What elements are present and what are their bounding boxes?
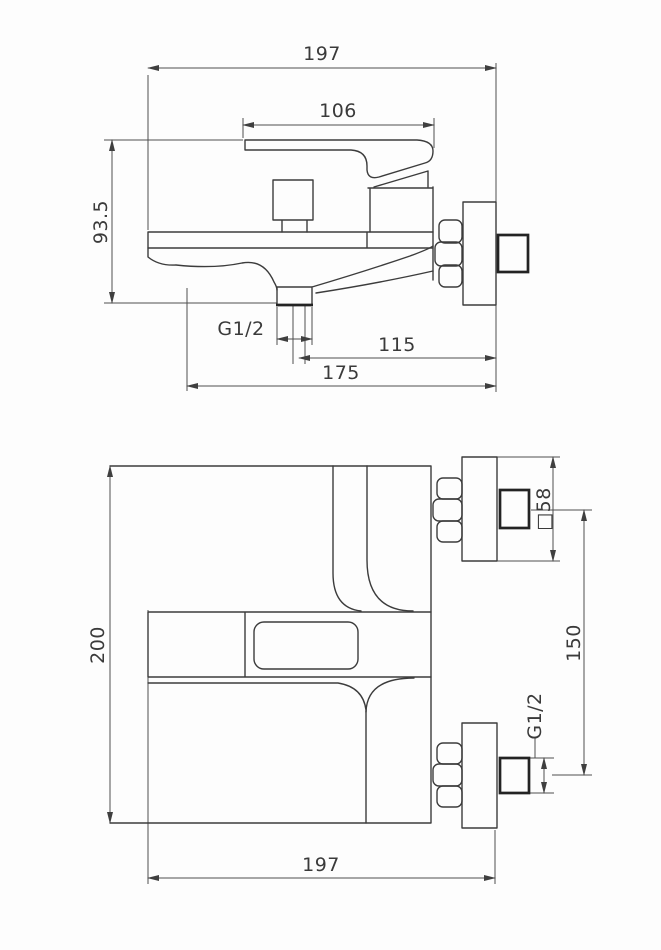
wall-flange: [462, 723, 497, 828]
lower-body-contour: [148, 683, 366, 823]
front-view-extension-lines: [148, 457, 592, 884]
diverter-knob: [273, 180, 313, 232]
spout-right-inner-contour: [316, 271, 433, 293]
lower-body-outer-contour: [366, 678, 414, 712]
dim-197-bottom-label: 197: [302, 854, 340, 876]
wall-flange: [463, 202, 496, 305]
front-view-drawing: 200 □58 150 G1/2 197: [87, 457, 592, 884]
technical-drawing-page: 197 106 93.5 G1/2 115 175: [0, 0, 661, 950]
hex-nut-facet: [435, 242, 462, 266]
lower-wall-connection: [433, 723, 529, 828]
bath-mixer-technical-drawing: 197 106 93.5 G1/2 115 175: [0, 0, 661, 950]
top-view-faucet-body: [148, 140, 528, 305]
hex-nut-facet: [437, 786, 462, 807]
dim-200-label: 200: [87, 626, 109, 664]
front-view-faucet-body: [110, 457, 529, 828]
dim-g12-bottom-label: G1/2: [524, 692, 546, 739]
hex-nut-facet: [437, 743, 462, 764]
body-deck: [148, 232, 433, 248]
pipe-fitting: [500, 490, 529, 528]
top-view-drawing: 197 106 93.5 G1/2 115 175: [90, 43, 528, 392]
hex-nut-facet: [437, 478, 462, 499]
handle-grip-cutout: [254, 622, 358, 669]
dim-115-label: 115: [378, 334, 416, 356]
dim-106-label: 106: [319, 100, 357, 122]
dim-93-5-label: 93.5: [90, 200, 112, 244]
cartridge-cap: [374, 171, 428, 187]
upper-riser-outer-contour: [367, 466, 413, 611]
dim-g12-outlet-label: G1/2: [217, 318, 264, 340]
hex-nut-facet: [437, 521, 462, 542]
front-view-dimension-lines: [110, 457, 584, 878]
spout-underside: [148, 248, 277, 290]
upper-riser-contour: [333, 466, 361, 611]
pipe-fitting: [500, 758, 529, 793]
hex-nut-facet: [439, 220, 462, 243]
spout-right-contour: [312, 246, 433, 287]
dim-175-label: 175: [322, 362, 360, 384]
pipe-fitting: [498, 235, 528, 272]
upper-wall-connection: [433, 457, 529, 561]
hex-nut-facet: [433, 764, 462, 786]
dim-197-top-label: 197: [303, 43, 341, 65]
handle-lever-outline: [245, 140, 433, 178]
hex-nut: [435, 220, 462, 287]
hex-nut-facet: [439, 265, 462, 287]
dim-150-label: 150: [563, 624, 585, 662]
dim-58-label: □58: [533, 487, 555, 531]
spout-outlet: [277, 287, 312, 305]
top-view-extension-lines: [104, 63, 496, 392]
wall-flange: [462, 457, 497, 561]
hex-nut-facet: [433, 499, 462, 521]
body-outline: [110, 466, 431, 823]
